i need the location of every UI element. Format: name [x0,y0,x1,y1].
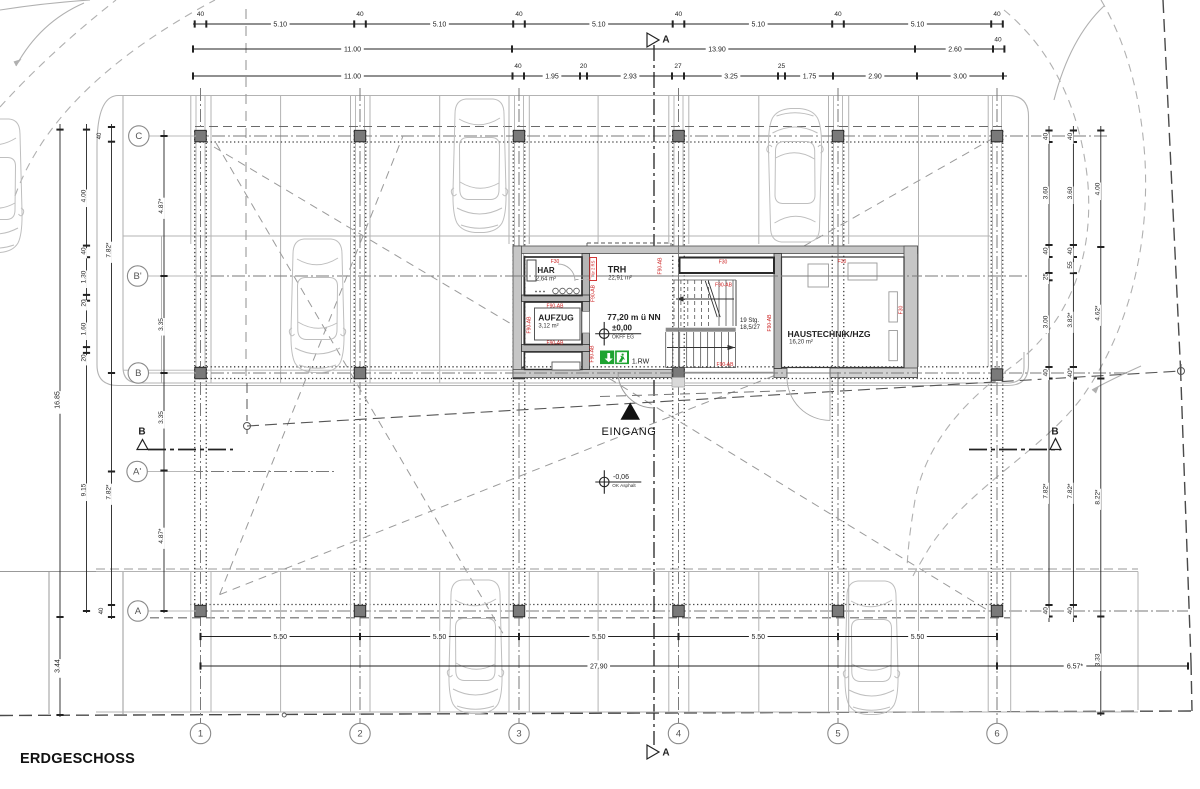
svg-text:4.00: 4.00 [81,189,88,202]
svg-text:40: 40 [1043,369,1050,377]
svg-text:5.50: 5.50 [592,634,606,641]
svg-text:1.30: 1.30 [81,270,88,283]
svg-text:F90-AB: F90-AB [547,304,565,310]
svg-text:OK Asphalt: OK Asphalt [612,483,636,488]
svg-text:5.10: 5.10 [433,21,447,28]
svg-text:-0,06: -0,06 [613,474,629,481]
svg-text:9.15: 9.15 [81,483,88,496]
svg-text:F90-AB: F90-AB [658,257,664,275]
svg-text:F90-AB: F90-AB [717,362,735,368]
svg-text:16.85: 16.85 [54,391,61,409]
svg-text:5.50: 5.50 [911,634,925,641]
svg-text:11.00: 11.00 [344,73,361,80]
svg-text:5: 5 [835,729,840,740]
svg-text:20: 20 [81,299,88,307]
svg-text:B': B' [134,271,142,282]
svg-text:19 Stg.: 19 Stg. [740,318,759,324]
svg-text:A: A [662,34,669,45]
svg-text:6.57*: 6.57* [1067,663,1084,670]
svg-text:40: 40 [515,11,523,18]
svg-text:2: 2 [357,729,362,740]
svg-text:B: B [135,368,141,379]
svg-text:3.35: 3.35 [158,411,165,424]
svg-text:40: 40 [993,11,1001,18]
svg-text:27: 27 [674,63,682,70]
svg-text:A': A' [133,467,141,478]
svg-text:40: 40 [994,37,1002,44]
svg-text:40: 40 [834,11,842,18]
svg-text:F30: F30 [719,260,728,266]
svg-text:40: 40 [197,11,205,18]
svg-text:F30: F30 [838,259,847,265]
svg-text:HAUSTECHNIK/HZG: HAUSTECHNIK/HZG [787,329,870,339]
svg-text:40: 40 [97,132,103,139]
svg-text:Tür 2 RS: Tür 2 RS [591,260,596,277]
svg-text:40: 40 [356,11,364,18]
svg-text:HAR: HAR [537,266,555,275]
svg-text:7.82*: 7.82* [106,484,113,500]
svg-text:5.10: 5.10 [592,21,606,28]
svg-text:20: 20 [81,354,88,362]
svg-text:F30: F30 [551,259,560,265]
svg-text:7.82*: 7.82* [1067,483,1074,499]
svg-text:40*: 40* [1067,367,1074,377]
svg-text:±0,00: ±0,00 [612,324,633,333]
svg-text:2,64 m²: 2,64 m² [536,277,556,283]
svg-text:40: 40 [1043,607,1050,615]
svg-text:25: 25 [1043,273,1050,281]
svg-text:F90-AB: F90-AB [547,341,565,347]
svg-text:13.90: 13.90 [708,46,726,53]
svg-text:1.75: 1.75 [803,73,817,80]
svg-text:3.00: 3.00 [953,73,967,80]
svg-text:3.25: 3.25 [724,73,738,80]
svg-text:18,5/27: 18,5/27 [740,325,761,331]
svg-text:3.82*: 3.82* [1067,312,1074,328]
svg-text:40: 40 [1043,247,1050,255]
svg-text:5.10: 5.10 [751,21,765,28]
svg-text:5.50: 5.50 [751,634,765,641]
svg-text:3.60: 3.60 [1067,186,1074,199]
svg-text:2.90: 2.90 [868,73,882,80]
svg-text:ERDGESCHOSS: ERDGESCHOSS [20,751,135,767]
svg-text:7.82*: 7.82* [1043,483,1050,499]
svg-text:3.60: 3.60 [1043,186,1050,199]
svg-text:40: 40 [1067,133,1074,141]
svg-text:2.60: 2.60 [948,46,962,53]
svg-text:B: B [1051,426,1058,437]
svg-text:3,12 m²: 3,12 m² [538,324,558,330]
svg-text:1.60: 1.60 [81,322,88,335]
svg-text:F90-AB: F90-AB [715,283,733,289]
svg-text:77,20 m ü NN: 77,20 m ü NN [607,312,660,322]
svg-text:40: 40 [675,11,683,18]
svg-text:11.00: 11.00 [344,46,361,53]
svg-text:7.82*: 7.82* [106,242,113,258]
svg-text:40: 40 [1067,247,1074,255]
svg-text:F90-AB: F90-AB [590,284,596,302]
svg-text:F90-AB: F90-AB [590,345,596,363]
svg-text:1: 1 [198,729,203,740]
svg-text:25: 25 [778,63,786,70]
svg-text:1.95: 1.95 [545,73,559,80]
svg-text:OKFF EG: OKFF EG [612,335,634,341]
svg-text:6: 6 [994,729,999,740]
svg-text:3.33: 3.33 [1095,653,1102,666]
svg-text:27.90: 27.90 [590,663,608,670]
svg-text:C: C [135,131,142,142]
svg-text:20: 20 [580,63,588,70]
svg-text:16,20 m²: 16,20 m² [789,340,813,346]
svg-text:A: A [662,747,669,758]
svg-text:4.87*: 4.87* [158,528,165,544]
svg-text:F90-AB: F90-AB [767,314,773,332]
svg-text:F90-AB: F90-AB [526,316,532,334]
svg-text:3.00: 3.00 [1043,315,1050,328]
svg-text:40: 40 [514,63,522,70]
svg-text:4.62*: 4.62* [1095,305,1102,321]
svg-text:4.87*: 4.87* [158,198,165,214]
svg-text:5.50: 5.50 [273,634,287,641]
svg-text:40: 40 [1043,133,1050,141]
svg-text:40: 40 [81,247,88,255]
svg-text:A: A [135,606,142,617]
svg-text:55: 55 [1067,261,1074,269]
svg-text:2.93: 2.93 [623,73,637,80]
svg-text:AUFZUG: AUFZUG [538,312,574,322]
svg-text:4.00: 4.00 [1095,182,1102,195]
svg-text:5.10: 5.10 [273,21,287,28]
svg-text:TRH: TRH [608,265,627,275]
svg-text:8.22*: 8.22* [1095,489,1102,505]
svg-text:3: 3 [516,729,521,740]
svg-text:5.50: 5.50 [433,634,447,641]
svg-text:F30: F30 [899,305,905,314]
svg-text:3.35: 3.35 [158,318,165,331]
svg-text:B: B [138,426,145,437]
svg-text:3.44: 3.44 [54,659,61,673]
svg-text:40: 40 [1067,607,1074,615]
svg-text:EINGANG: EINGANG [602,426,657,438]
svg-text:1.RW: 1.RW [632,359,650,366]
svg-text:4: 4 [676,729,681,740]
svg-text:40: 40 [99,607,105,614]
svg-text:5.10: 5.10 [911,21,925,28]
